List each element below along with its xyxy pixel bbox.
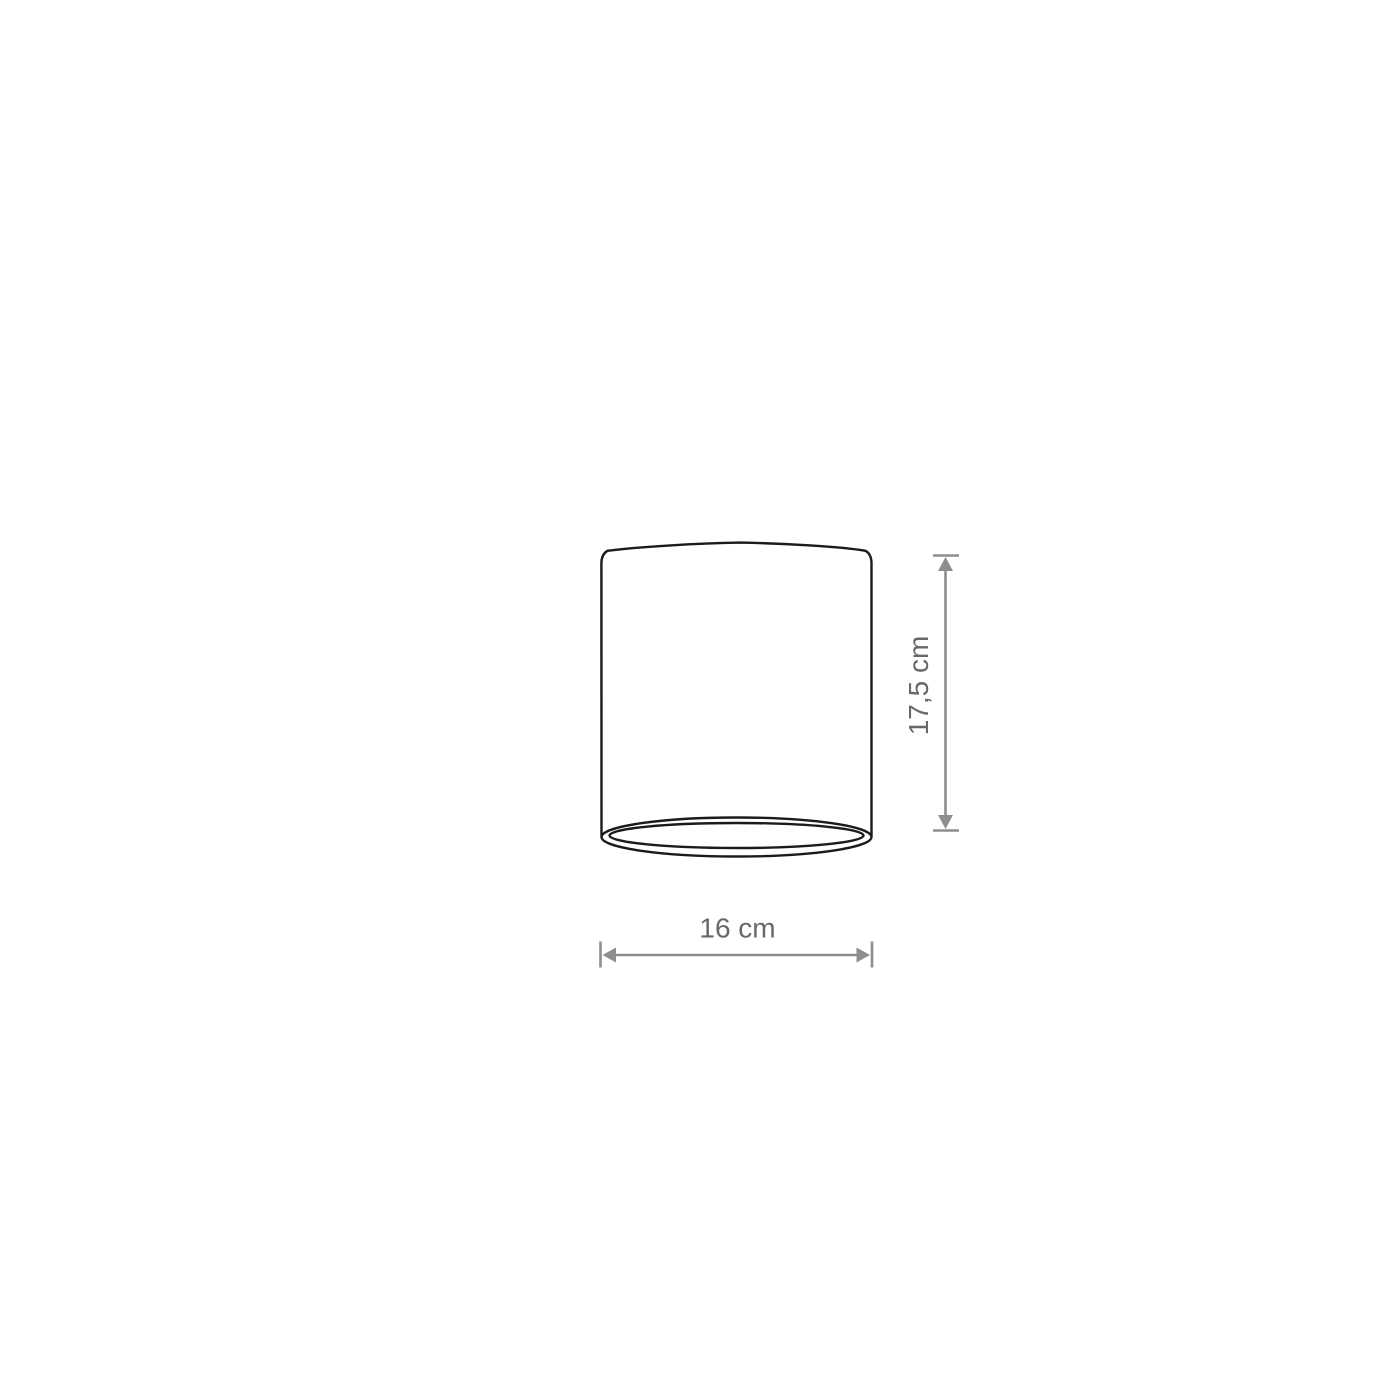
svg-text:17,5 cm: 17,5 cm: [903, 636, 934, 736]
svg-text:16 cm: 16 cm: [699, 913, 775, 944]
